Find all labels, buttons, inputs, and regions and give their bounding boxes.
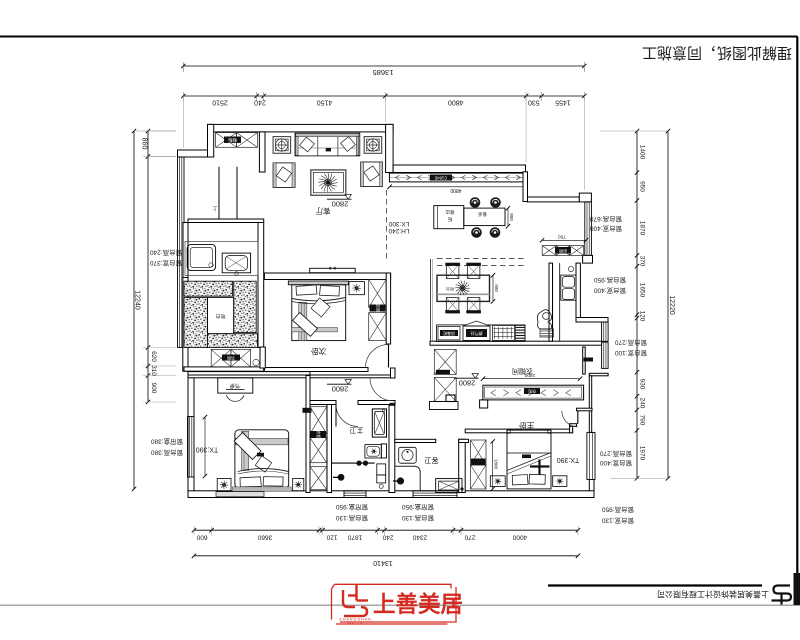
svg-text:消毒柜: 消毒柜: [443, 331, 455, 337]
svg-text:310: 310: [150, 365, 157, 376]
svg-text:吊柜: 吊柜: [559, 247, 567, 254]
svg-text:13410: 13410: [373, 559, 393, 566]
svg-text:主卫: 主卫: [350, 426, 364, 435]
svg-text:900: 900: [494, 284, 499, 292]
svg-text:上善美居: 上善美居: [373, 591, 463, 617]
svg-text:2340: 2340: [412, 533, 427, 540]
svg-text:窗台高:670: 窗台高:670: [590, 215, 623, 224]
svg-text:书桌: 书桌: [229, 382, 241, 390]
svg-text:窗台宽:400: 窗台宽:400: [594, 286, 627, 295]
svg-text:600: 600: [196, 533, 207, 540]
svg-text:窗台宽:400: 窗台宽:400: [600, 459, 633, 468]
svg-text:窗台高:270: 窗台高:270: [615, 338, 648, 347]
svg-text:LX:300: LX:300: [388, 220, 409, 227]
svg-text:1800: 1800: [524, 372, 535, 378]
svg-text:1870: 1870: [347, 533, 362, 540]
svg-text:书柜: 书柜: [227, 354, 235, 361]
svg-text:4000: 4000: [512, 533, 527, 540]
svg-text:餐边: 餐边: [445, 208, 454, 215]
svg-text:TX:390: TX:390: [196, 446, 219, 453]
svg-text:1400: 1400: [638, 145, 645, 160]
svg-text:240: 240: [254, 99, 266, 106]
svg-text:窗台高:270: 窗台高:270: [600, 449, 633, 458]
svg-text:窗帘盒:950: 窗帘盒:950: [336, 503, 369, 512]
svg-text:620: 620: [150, 351, 157, 362]
svg-text:900: 900: [150, 383, 157, 394]
svg-text:1970: 1970: [638, 446, 645, 461]
svg-text:衣柜: 衣柜: [374, 304, 381, 312]
svg-text:窗台高:130: 窗台高:130: [402, 514, 435, 523]
svg-text:窗台高:950: 窗台高:950: [594, 276, 627, 285]
svg-text:240: 240: [638, 398, 645, 409]
svg-text:主卧: 主卧: [519, 421, 535, 431]
svg-text:120: 120: [326, 533, 337, 540]
svg-text:吧台: 吧台: [446, 285, 454, 292]
svg-text:950: 950: [638, 181, 645, 192]
svg-text:客厅: 客厅: [315, 207, 330, 217]
svg-text:次卧: 次卧: [311, 346, 327, 356]
svg-text:120: 120: [638, 311, 645, 322]
svg-text:860: 860: [141, 138, 148, 150]
svg-text:13685: 13685: [373, 68, 394, 77]
svg-text:窗台高:380: 窗台高:380: [151, 448, 184, 457]
svg-text:4800: 4800: [450, 187, 461, 193]
svg-text:4150: 4150: [317, 99, 333, 106]
svg-text:C1845: C1845: [434, 176, 447, 181]
svg-text:窗帘盒:380: 窗帘盒:380: [151, 437, 184, 446]
svg-text:4800: 4800: [448, 99, 464, 106]
svg-text:1800: 1800: [494, 459, 499, 470]
svg-text:240: 240: [382, 533, 393, 540]
svg-text:750: 750: [558, 233, 566, 239]
svg-text:2510: 2510: [212, 99, 228, 106]
svg-text:530: 530: [528, 99, 540, 106]
svg-text:1650: 1650: [638, 283, 645, 298]
svg-text:800: 800: [509, 213, 514, 221]
svg-text:窗帘盒:950: 窗帘盒:950: [402, 503, 435, 512]
svg-text:地台: 地台: [215, 313, 225, 320]
svg-text:上: 上: [212, 205, 217, 212]
svg-text:鞋柜: 鞋柜: [228, 137, 237, 144]
svg-text:12240: 12240: [134, 290, 141, 310]
svg-text:270: 270: [464, 533, 475, 540]
svg-text:1455: 1455: [555, 99, 571, 106]
svg-text:衣柜: 衣柜: [528, 388, 536, 395]
svg-text:2800: 2800: [332, 200, 349, 209]
svg-text:窗台宽:400: 窗台宽:400: [590, 224, 623, 233]
svg-text:LH:240: LH:240: [388, 227, 409, 234]
svg-text:M E I J U: M E I J U: [348, 621, 363, 625]
svg-text:370: 370: [638, 256, 645, 267]
svg-text:柜: 柜: [447, 215, 452, 222]
svg-text:餐桌: 餐桌: [478, 210, 487, 217]
svg-text:上善美居装饰设计工程有限公司: 上善美居装饰设计工程有限公司: [657, 589, 769, 599]
svg-text:12220: 12220: [668, 295, 675, 315]
svg-text:2800: 2800: [332, 385, 349, 394]
svg-text:1870: 1870: [638, 221, 645, 236]
svg-text:790: 790: [638, 415, 645, 426]
svg-text:燃气灶: 燃气灶: [470, 330, 483, 337]
svg-text:衣柜: 衣柜: [315, 430, 322, 438]
svg-text:窗台高:130: 窗台高:130: [336, 514, 369, 523]
svg-text:窗台宽:100: 窗台宽:100: [615, 349, 648, 358]
svg-text:TX:390: TX:390: [557, 456, 580, 463]
svg-text:930: 930: [638, 379, 645, 390]
svg-text:客卫: 客卫: [425, 456, 439, 465]
svg-text:3660: 3660: [257, 533, 272, 540]
svg-text:窗台高:950: 窗台高:950: [602, 505, 635, 514]
svg-text:理解此图纸，同意施工: 理解此图纸，同意施工: [642, 44, 792, 62]
svg-text:窗台宽:130: 窗台宽:130: [602, 516, 635, 525]
svg-text:2800: 2800: [459, 379, 476, 388]
